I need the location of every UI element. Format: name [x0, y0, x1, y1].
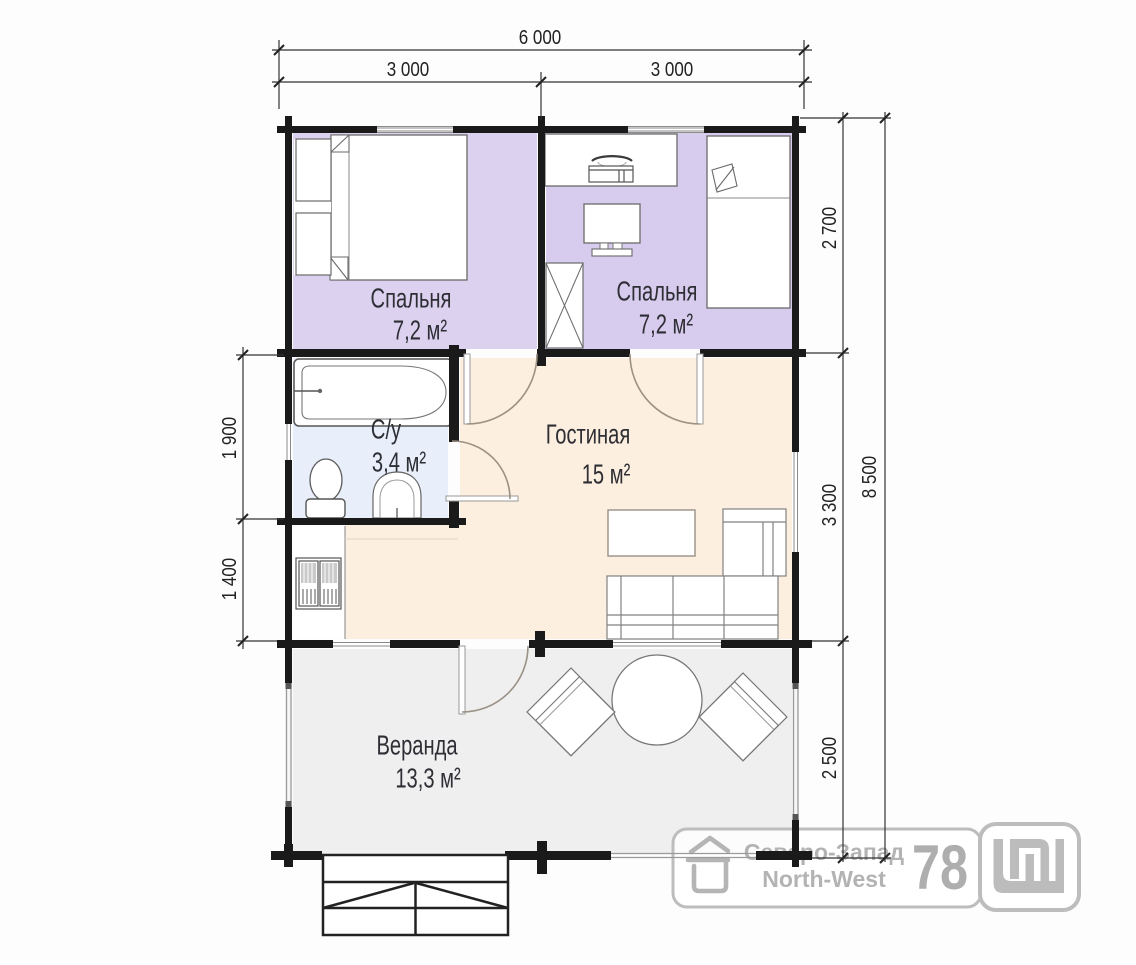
svg-text:15 м²: 15 м²	[582, 459, 631, 490]
svg-text:78: 78	[912, 833, 968, 904]
svg-text:С/у: С/у	[371, 414, 402, 445]
svg-text:3 300: 3 300	[818, 484, 841, 527]
svg-text:3 000: 3 000	[651, 58, 694, 81]
svg-text:Спальня: Спальня	[371, 283, 452, 314]
svg-text:8 500: 8 500	[858, 456, 881, 499]
svg-text:6 000: 6 000	[519, 26, 562, 49]
svg-text:Спальня: Спальня	[617, 276, 698, 307]
svg-text:Гостиная: Гостиная	[546, 419, 631, 450]
svg-text:North-West: North-West	[762, 866, 886, 892]
svg-text:2 700: 2 700	[818, 207, 841, 250]
svg-text:1 900: 1 900	[218, 417, 241, 460]
svg-text:3 000: 3 000	[387, 58, 430, 81]
svg-text:2 500: 2 500	[818, 737, 841, 780]
svg-text:7,2 м²: 7,2 м²	[639, 309, 693, 340]
svg-text:1 400: 1 400	[218, 558, 241, 601]
svg-text:Веранда: Веранда	[376, 730, 457, 761]
svg-text:3,4 м²: 3,4 м²	[372, 447, 426, 478]
svg-text:7,2 м²: 7,2 м²	[393, 315, 447, 346]
svg-text:13,3 м²: 13,3 м²	[395, 763, 460, 794]
